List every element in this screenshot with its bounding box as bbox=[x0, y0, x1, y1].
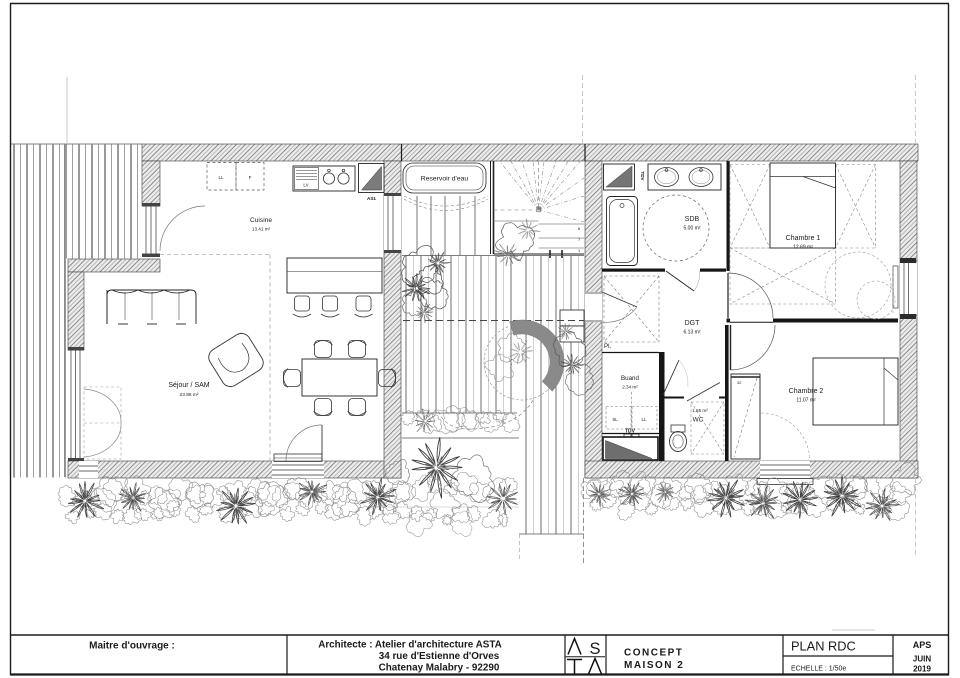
svg-text:JUIN: JUIN bbox=[913, 655, 931, 664]
svg-text:Chatenay Malabry - 92290: Chatenay Malabry - 92290 bbox=[379, 663, 500, 674]
svg-text:CONCEPT: CONCEPT bbox=[624, 648, 683, 659]
svg-text:Maitre d'ouvrage :: Maitre d'ouvrage : bbox=[89, 641, 175, 652]
svg-text:6.13 m²: 6.13 m² bbox=[684, 330, 701, 336]
svg-text:13.41 m²: 13.41 m² bbox=[252, 227, 271, 232]
svg-text:Reservoir d'eau: Reservoir d'eau bbox=[421, 176, 469, 183]
svg-text:Chambre 2: Chambre 2 bbox=[789, 388, 824, 395]
svg-text:11.07 m²: 11.07 m² bbox=[796, 398, 816, 404]
svg-text:5.00 m²: 5.00 m² bbox=[684, 226, 701, 232]
svg-text:7: 7 bbox=[578, 238, 580, 242]
svg-text:APS: APS bbox=[913, 640, 932, 650]
svg-text:Architecte : Atelier d'archite: Architecte : Atelier d'architecture ASTA bbox=[318, 640, 502, 651]
svg-text:Pl.: Pl. bbox=[604, 343, 612, 350]
svg-text:1.85 m²: 1.85 m² bbox=[692, 408, 708, 413]
svg-text:Séjour / SAM: Séjour / SAM bbox=[168, 382, 209, 389]
svg-text:32: 32 bbox=[737, 380, 742, 385]
svg-text:SL: SL bbox=[612, 417, 618, 422]
svg-text:TDV: TDV bbox=[640, 171, 645, 181]
svg-text:F: F bbox=[249, 175, 252, 180]
svg-text:34 rue d'Estienne d'Orves: 34 rue d'Estienne d'Orves bbox=[379, 651, 500, 662]
svg-text:S: S bbox=[589, 640, 600, 658]
svg-text:2.34 m²: 2.34 m² bbox=[622, 385, 638, 390]
svg-text:1: 1 bbox=[578, 249, 580, 253]
svg-text:MAISON 2: MAISON 2 bbox=[624, 660, 684, 671]
svg-text:DGT: DGT bbox=[685, 320, 701, 327]
svg-text:AS1: AS1 bbox=[367, 196, 376, 201]
svg-text:12.69 m²: 12.69 m² bbox=[793, 245, 813, 251]
svg-text:Buand: Buand bbox=[621, 375, 639, 382]
svg-text:WC: WC bbox=[693, 417, 704, 424]
svg-text:PLAN RDC: PLAN RDC bbox=[791, 639, 856, 654]
svg-text:LL: LL bbox=[642, 417, 647, 422]
svg-text:Chambre 1: Chambre 1 bbox=[786, 235, 821, 242]
svg-text:LL: LL bbox=[218, 175, 224, 180]
svg-text:23.86 m²: 23.86 m² bbox=[180, 392, 199, 398]
svg-text:8: 8 bbox=[578, 227, 580, 231]
svg-text:Cuisine: Cuisine bbox=[250, 217, 272, 224]
svg-text:SDB: SDB bbox=[685, 216, 700, 223]
svg-text:ECHELLE : 1/50e: ECHELLE : 1/50e bbox=[791, 666, 846, 673]
svg-text:2019: 2019 bbox=[913, 665, 931, 674]
